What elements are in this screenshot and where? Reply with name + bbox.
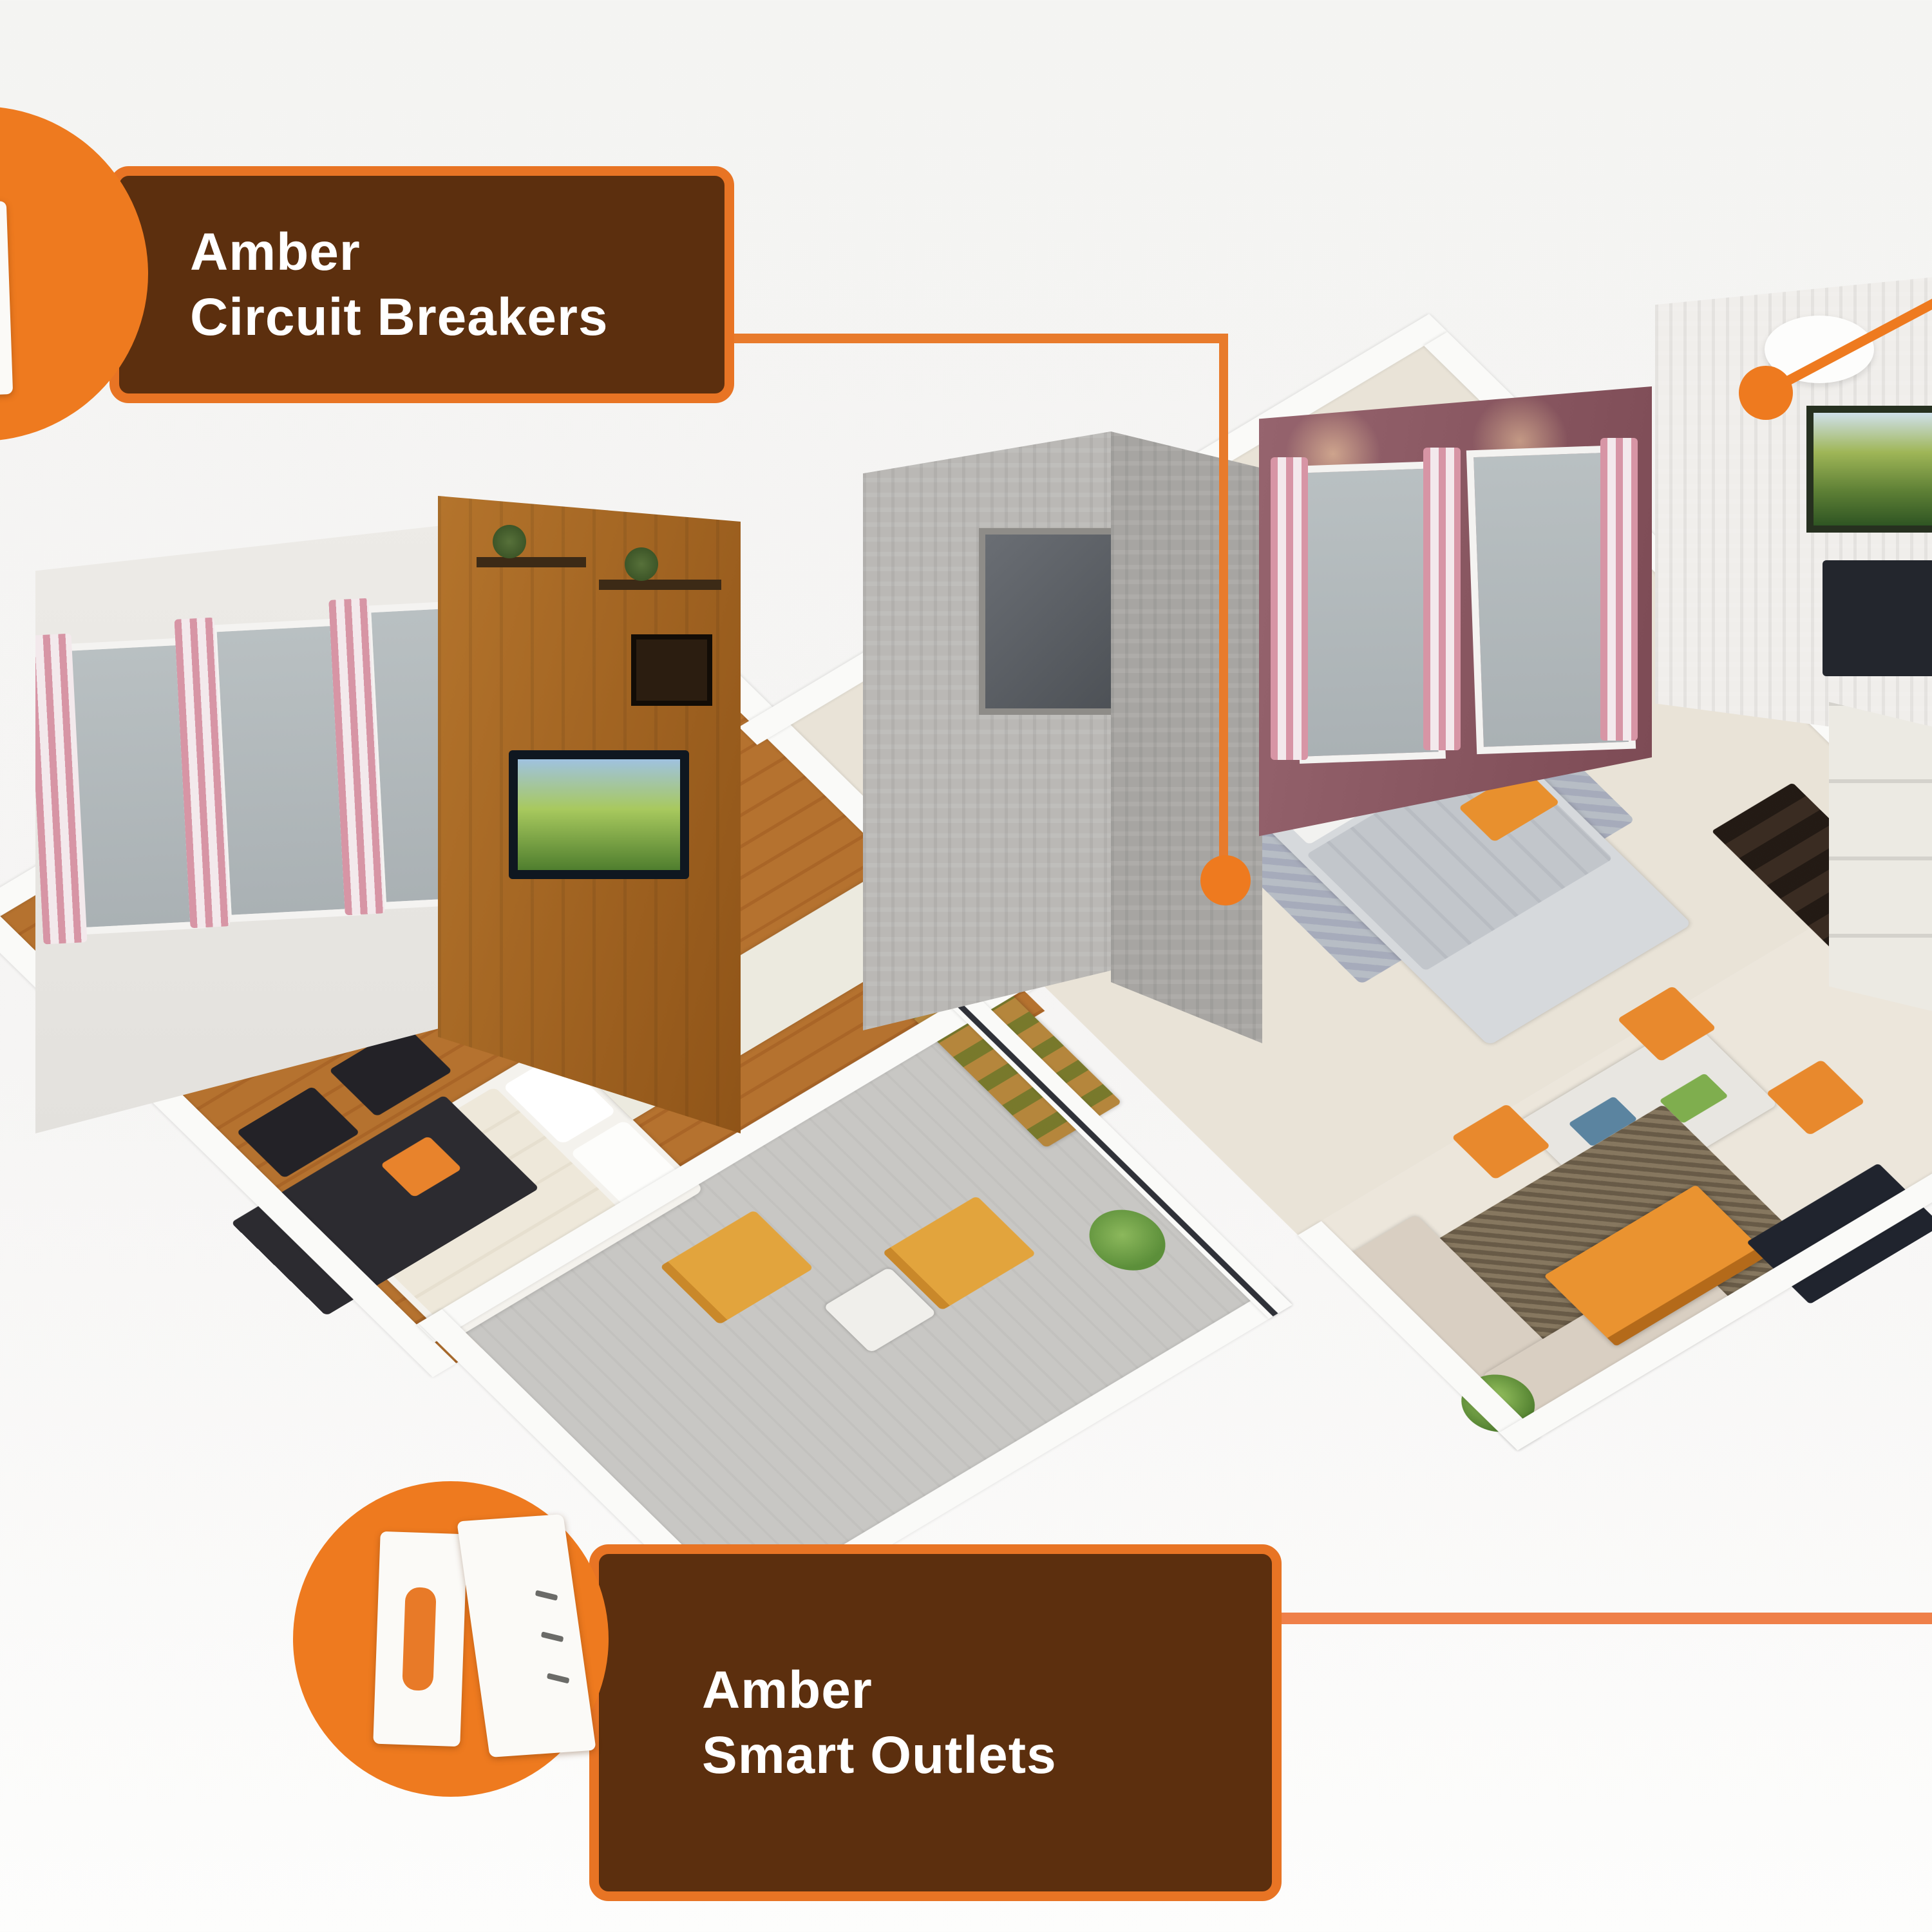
wall-shelf	[477, 557, 586, 567]
bathroom-mirror	[979, 528, 1130, 715]
window	[1289, 461, 1446, 764]
outlet-plate	[373, 1531, 467, 1747]
callout-circuit-breakers-line2: Circuit Breakers	[190, 285, 724, 350]
green-landscape-picture	[1806, 406, 1932, 533]
bathroom-tile-wall-side	[1111, 431, 1262, 1043]
bathroom-tile-wall	[863, 431, 1111, 1030]
wall-picture-frame	[631, 634, 712, 706]
connector-dot-circuit-breakers	[1200, 855, 1251, 905]
pink-curtain	[1271, 457, 1308, 760]
callout-smart-outlets-line1: Amber	[702, 1658, 1272, 1723]
tv-screen	[509, 750, 689, 879]
outlet-switch	[547, 1673, 569, 1684]
callout-smart-outlets-line2: Smart Outlets	[702, 1723, 1272, 1788]
wall-tv-dark	[1823, 560, 1932, 676]
callout-smart-outlets: Amber Smart Outlets	[589, 1544, 1282, 1901]
callout-circuit-breakers: Amber Circuit Breakers	[109, 166, 734, 403]
shelf-plant	[493, 525, 526, 558]
outlet-switch	[535, 1590, 558, 1601]
connector-line-circuit-breakers-vertical	[1219, 334, 1228, 858]
callout-circuit-breakers-line1: Amber	[190, 220, 724, 285]
outlet-door-panel	[457, 1514, 596, 1757]
outlet-switch	[541, 1631, 563, 1642]
pink-curtain	[1600, 438, 1638, 741]
circuit-breaker-panel-icon	[0, 201, 13, 398]
wall-shelf	[599, 580, 721, 590]
wood-accent-wall	[438, 496, 741, 1140]
kitchen-cabinets	[1829, 702, 1932, 1011]
connector-line-circuit-breakers-horizontal	[657, 334, 1227, 343]
tv-picture	[518, 759, 680, 870]
outlet-slot	[402, 1587, 437, 1691]
smart-outlet-badge	[293, 1481, 609, 1797]
shelf-plant	[625, 547, 658, 581]
pink-curtain	[1423, 448, 1461, 750]
